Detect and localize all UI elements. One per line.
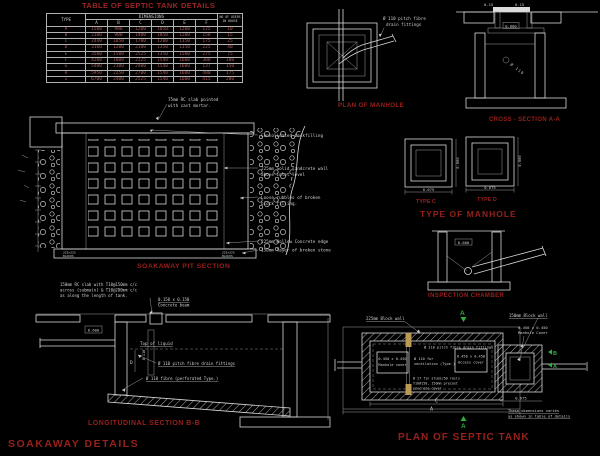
users-header-line2: IN HOUSE	[218, 20, 242, 23]
type-c-caption: TYPE C	[416, 199, 436, 205]
type-c-width-dim: 0.675	[423, 187, 434, 192]
inlet-pipe	[40, 340, 115, 346]
cover-slab	[493, 7, 530, 12]
main-title: SOAKAWAY DETAILS	[8, 438, 139, 450]
top-slab	[56, 123, 254, 133]
rubble-note-line1: Loose rubbles of broken	[261, 195, 321, 201]
plan-of-septic-tank-caption: PLAN OF SEPTIC TANK	[398, 432, 530, 443]
plan-of-septic-tank-drawing: 0.450 x 0.450 Manhole cover 0.450 x 0.45…	[335, 310, 587, 443]
manhole-note-line2: drain fittings	[386, 22, 422, 27]
type-c-height-dim: 0.600	[455, 157, 460, 169]
dims-note-line1: These dimensions varies	[508, 409, 559, 413]
table-title: TABLE OF SEPTIC TANK DETAILS	[82, 1, 215, 10]
type-d-caption: TYPE D	[477, 197, 497, 203]
concrete-beam	[150, 313, 162, 324]
ground-hatch-left	[464, 12, 494, 23]
chamber-dim: 0.600	[458, 240, 470, 245]
section-marker-right-2: A	[553, 364, 557, 370]
manhole-note-line1: Ø 110 pitch fibre	[383, 16, 426, 21]
cover-callout-line2: Manhole Cover	[518, 330, 548, 335]
stone-note: 150mm layer of broken stone	[261, 248, 331, 254]
stones-right	[250, 128, 302, 252]
slab-note-line2: with cast mortar.	[168, 103, 211, 108]
type-of-manhole-title: TYPE OF MANHOLE	[420, 209, 517, 219]
inlet-pipe	[337, 362, 362, 368]
precast-label-line3: concrete cover	[413, 387, 442, 391]
pipe-note: Ø 110 pitch fibre drain fittings	[158, 361, 236, 366]
perforated-note: Ø 110 fibre (perforated Type.)	[146, 376, 218, 381]
section-marker-right-1: B	[553, 351, 557, 357]
cross-section-aa-drawing: 0.15 0.15 0.600 Ø 110 CROSS - SECTION A-…	[456, 2, 598, 123]
corner-left-line2: BLOCKS	[63, 254, 74, 258]
dip-pipe-label: Ø 110	[141, 350, 146, 361]
beam-note-line2: Concrete beam	[158, 303, 190, 308]
dip-pipe	[148, 330, 154, 375]
rubble-note-line2: block filling.	[261, 201, 297, 207]
mh1-label-line2: Manhole cover	[378, 363, 407, 367]
backfill-note: Consolidated backfilling	[261, 133, 323, 139]
cad-canvas: Ø 110 pitch fibre drain fittings PLAN OF…	[0, 0, 600, 456]
longitudinal-caption: LONGITUDINAL SECTION B-B	[88, 420, 200, 427]
slab-note-line1: 75mm RC slab pointed	[168, 97, 219, 102]
chamber-wall-right	[535, 33, 545, 98]
precast-label-line2: T10@150, 150mm precast	[413, 382, 458, 386]
type-of-manhole-drawing: 0.675 0.600 TYPE C 0.675 0.600 TYPE D TY…	[405, 137, 522, 219]
wall-note-line2: above inlet level	[261, 172, 305, 178]
dim-c-label: C	[435, 399, 438, 405]
beam-note-line1: 0.150 x 0.150	[158, 297, 190, 302]
slab-note-line1: 150mm RC slab with T10@150mm c/c	[60, 282, 138, 287]
ground-block	[30, 117, 62, 147]
foundation	[240, 417, 330, 427]
type-d-height-dim: 0.600	[517, 155, 522, 167]
table-row: I 6700 2400 2525 1540 1600 415 200	[47, 76, 243, 82]
longitudinal-section-drawing: 150mm RC slab with T10@150mm c/c across …	[36, 282, 330, 427]
ground-hatch-right	[531, 12, 561, 23]
liquid-label: Top of liquid	[140, 341, 173, 346]
honeycomb-blocks	[88, 139, 222, 241]
section-marker-bottom: A	[461, 423, 466, 430]
tank-wall-right	[283, 322, 297, 417]
pipe-circle	[503, 57, 509, 63]
pipe-label: Ø 110 pitch fibre drain fittings	[424, 345, 493, 350]
sloped-floor	[108, 394, 290, 416]
section-arrow-bottom	[461, 416, 467, 421]
section-arrow-right-2	[548, 363, 552, 368]
chamber-wall-left	[438, 232, 447, 282]
corner-right-line2: BLOCKS	[222, 254, 233, 258]
vent-label-line2: ventilation (Type.)	[414, 362, 455, 366]
branch-pipe	[339, 36, 394, 64]
section-arrow-top	[461, 317, 467, 322]
wall-note-line1: 225mm Solid sandcrete wall	[261, 166, 329, 172]
slab-note-line3: as along the length of tank.	[60, 293, 127, 298]
plan-of-manhole-caption: PLAN OF MANHOLE	[338, 102, 404, 109]
vent-label-line1: Ø 110 for	[414, 356, 434, 361]
type-d-width-dim: 0.675	[484, 185, 495, 190]
soakaway-pit-caption: SOAKAWAY PIT SECTION	[137, 263, 230, 270]
chamber-wall-left	[475, 33, 485, 98]
dim-a-label: A	[430, 407, 433, 413]
precast-label-line1: Ø 27 fin studs/50 rails	[413, 376, 460, 381]
soakaway-pit-section-drawing: 75mm RC slab pointed with cast mortar. 2…	[18, 97, 331, 270]
dim-015-left: 0.15	[484, 2, 493, 7]
vent-pipe-top	[406, 333, 412, 347]
septic-tank-table: TYPE DIMENSIONS NO OF USERS IN HOUSE A B…	[46, 13, 243, 83]
wall150-callout: 150mm Block wall	[509, 313, 548, 318]
cross-section-caption: CROSS - SECTION A-A	[489, 117, 561, 123]
edge-note: 225mm Hollow Concrete edge	[261, 239, 329, 245]
dim-0675-label: 0.675	[515, 396, 526, 401]
col-header-type: TYPE	[47, 14, 86, 27]
mh1-label-line1: 0.450 x 0.450	[378, 357, 406, 361]
inspection-chamber-drawing: 0.600 INSPECTION CHAMBER	[428, 231, 546, 299]
chamber-base	[428, 282, 510, 290]
dim-015-right: 0.15	[515, 2, 524, 7]
pipe-label: Ø 110	[509, 62, 525, 76]
outlet-circle	[465, 268, 472, 275]
section-arrow-right-1	[548, 350, 552, 355]
outlet-pipe	[472, 248, 545, 274]
dims-note-line2: as shown in table of details	[508, 415, 570, 419]
base-slab	[466, 98, 566, 108]
mh2-label-line2: Access cover	[458, 361, 485, 365]
vent-pipe-bottom	[406, 384, 412, 395]
inspection-chamber-caption: INSPECTION CHAMBER	[428, 293, 504, 299]
chamber-wall-right	[492, 232, 501, 282]
tank-wall-left	[115, 322, 127, 395]
dim-0600: 0.600	[505, 23, 517, 28]
wall225-callout: 225mm Block wall	[366, 316, 405, 321]
plan-of-manhole-drawing: Ø 110 pitch fibre drain fittings PLAN OF…	[307, 9, 426, 109]
section-marker-top: A	[460, 310, 465, 317]
neck-wall-left	[495, 12, 500, 28]
opening-dim: 0.600	[88, 328, 100, 333]
slab-note-line2: across (submain) & T10@200mm c/c	[60, 288, 138, 293]
dim-d-label: D	[130, 360, 133, 366]
stones-left	[38, 150, 60, 248]
col-header-users: NO OF USERS IN HOUSE	[218, 14, 243, 27]
mh2-label-line1: 0.450 x 0.450	[457, 355, 485, 359]
